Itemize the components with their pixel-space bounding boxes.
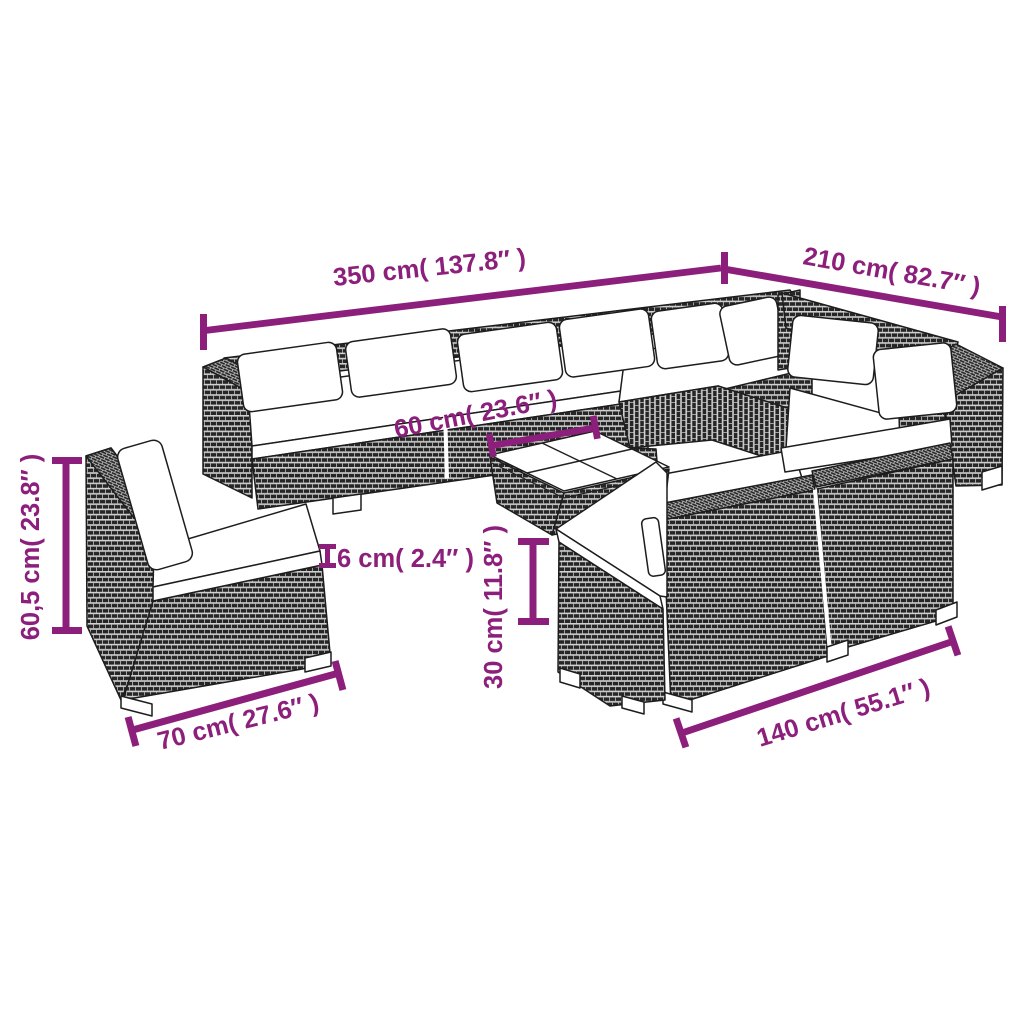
svg-text:30 cm( 11.8″ ): 30 cm( 11.8″ )	[480, 525, 508, 689]
svg-text:350 cm( 137.8″ ): 350 cm( 137.8″ )	[332, 244, 528, 292]
svg-text:60,5 cm( 23.8″ ): 60,5 cm( 23.8″ )	[17, 454, 45, 641]
svg-text:140 cm( 55.1″ ): 140 cm( 55.1″ )	[754, 673, 934, 752]
svg-text:6 cm( 2.4″ ): 6 cm( 2.4″ )	[337, 545, 474, 573]
svg-text:210 cm( 82.7″ ): 210 cm( 82.7″ )	[801, 242, 983, 301]
